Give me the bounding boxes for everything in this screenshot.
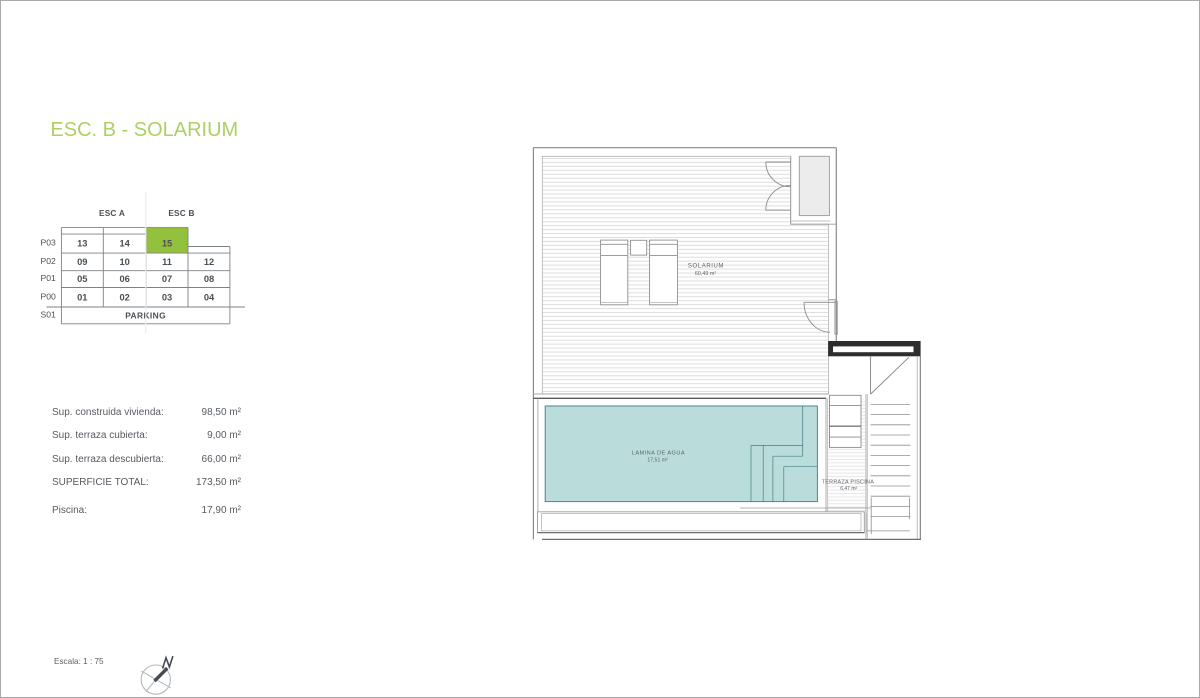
svg-text:07: 07: [162, 274, 172, 284]
svg-text:14: 14: [120, 239, 131, 249]
svg-text:09: 09: [77, 257, 87, 267]
svg-text:ESC A: ESC A: [99, 208, 125, 218]
svg-text:05: 05: [77, 274, 87, 284]
svg-text:02: 02: [120, 292, 130, 302]
svg-text:SOLARIUM: SOLARIUM: [688, 263, 724, 269]
svg-text:17,51 m²: 17,51 m²: [647, 458, 668, 464]
svg-text:ESC B: ESC B: [168, 208, 194, 218]
svg-text:12: 12: [204, 257, 214, 267]
svg-text:10: 10: [120, 257, 130, 267]
svg-text:P01: P01: [41, 273, 57, 283]
svg-text:01: 01: [77, 292, 87, 302]
svg-text:11: 11: [162, 257, 172, 267]
svg-text:P00: P00: [41, 291, 57, 301]
svg-text:60,49 m²: 60,49 m²: [695, 271, 716, 277]
svg-text:06: 06: [120, 274, 130, 284]
svg-text:P03: P03: [41, 238, 57, 248]
svg-text:03: 03: [162, 292, 172, 302]
svg-text:P02: P02: [41, 256, 57, 266]
svg-text:08: 08: [204, 274, 214, 284]
svg-text:LAMINA DE AGUA: LAMINA DE AGUA: [632, 451, 685, 457]
svg-text:6,47 m²: 6,47 m²: [840, 486, 857, 492]
svg-text:13: 13: [77, 239, 87, 249]
svg-text:15: 15: [162, 239, 172, 249]
svg-text:TERRAZA PISCINA: TERRAZA PISCINA: [822, 480, 875, 486]
svg-text:S01: S01: [41, 309, 57, 319]
svg-text:04: 04: [204, 292, 215, 302]
